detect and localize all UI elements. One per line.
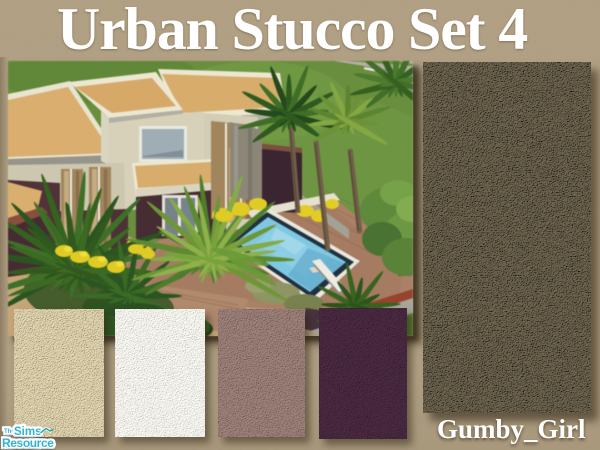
svg-text:Resource: Resource bbox=[2, 436, 54, 450]
